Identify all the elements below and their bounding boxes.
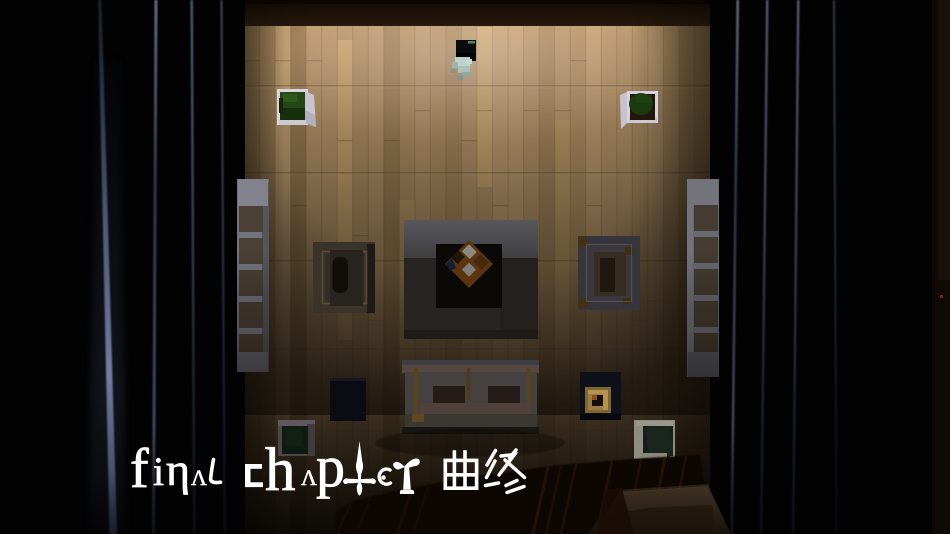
- svg-text:Λ: Λ: [301, 465, 317, 490]
- svg-text:η: η: [166, 444, 190, 495]
- svg-text:Λ: Λ: [191, 465, 207, 490]
- svg-text:i: i: [153, 449, 164, 494]
- svg-text:h: h: [265, 437, 296, 504]
- svg-text:p: p: [316, 434, 345, 499]
- svg-text:f: f: [130, 438, 149, 500]
